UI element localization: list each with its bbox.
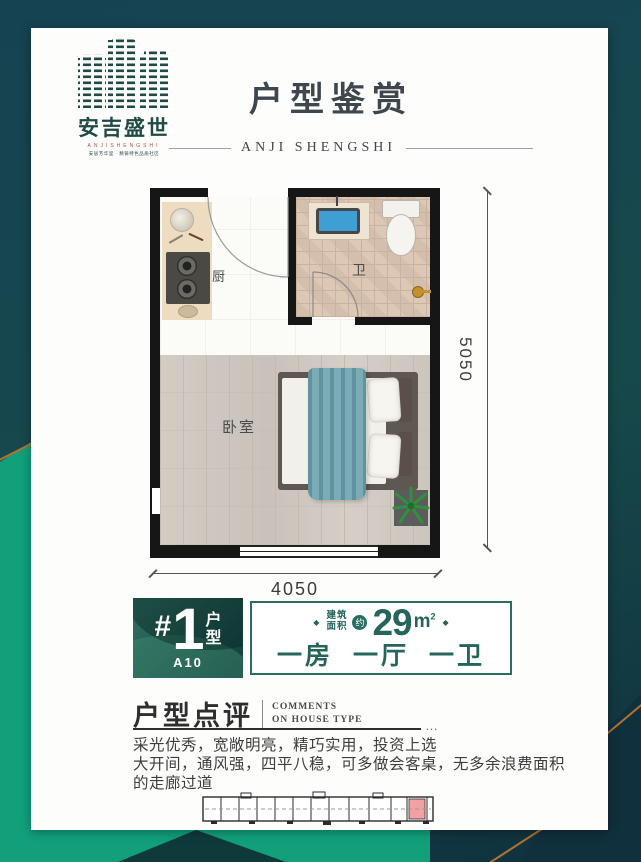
comments-subtitle-line: COMMENTS (272, 701, 362, 714)
dimension-line-horizontal (152, 573, 438, 574)
door-arcs (150, 188, 440, 560)
dimension-width: 4050 (255, 579, 335, 600)
poster-card: 安吉盛世 ANJISHENGSHI 安居芳华里 · 精铸特色品质社区 户型鉴赏 … (31, 28, 608, 830)
dimension-height: 5050 (455, 328, 475, 392)
building-key-plan (195, 790, 441, 828)
poster: 安吉盛世 ANJISHENGSHI 安居芳华里 · 精铸特色品质社区 户型鉴赏 … (0, 0, 641, 862)
area-unit: m2 (414, 611, 436, 633)
area-label-line: 面积 (326, 622, 347, 633)
badge-hash: # (155, 610, 172, 644)
badge-type-char: 户 (205, 612, 221, 630)
diamond-icon: ◆ (313, 618, 319, 627)
subtitle-rule-left (169, 148, 231, 149)
badge-number: 1 (172, 604, 204, 655)
area-unit-m: m (414, 611, 431, 632)
badge-code: A10 (133, 655, 243, 670)
comments-subtitle: COMMENTS ON HOUSE TYPE (272, 701, 362, 727)
area-row: ◆ 建筑 面积 约 29 m2 ◆ (252, 603, 510, 641)
area-label: 建筑 面积 (326, 611, 347, 633)
subtitle-rule-right (406, 148, 533, 149)
subtitle-text: ANJI SHENGSHI (241, 140, 396, 156)
page-title: 户型鉴赏 (171, 72, 491, 121)
diamond-icon: ◆ (443, 618, 449, 627)
area-value: 29 (372, 604, 411, 641)
area-unit-sup: 2 (431, 612, 436, 622)
badge-main: # 1 户 型 (133, 604, 243, 655)
layout-text: 一房 一厅 一卫 (252, 641, 510, 671)
comments-line1: 采光优秀，宽敞明亮，精巧实用，投资上选 (133, 736, 573, 755)
comments-subtitle-line: ON HOUSE TYPE (272, 714, 362, 727)
badge-type-char: 型 (205, 630, 221, 648)
dimension-line-vertical (487, 190, 488, 548)
comments-ellipsis: … (425, 718, 439, 733)
comments-divider (262, 700, 263, 728)
comments-paragraph: 采光优秀，宽敞明亮，精巧实用，投资上选 大开间，通风强，四平八稳，可多做会客桌，… (133, 736, 573, 793)
badge-type: 户 型 (205, 612, 221, 649)
page-subtitle: ANJI SHENGSHI (141, 140, 561, 156)
comments-rule (133, 728, 421, 730)
area-box: ◆ 建筑 面积 约 29 m2 ◆ 一房 一厅 一卫 (250, 601, 512, 675)
approx-circle: 约 (352, 615, 367, 630)
comments-line2: 大开间，通风强，四平八稳，可多做会客桌，无多余浪费面积的走廊过道 (133, 755, 573, 793)
buildings-logo-icon (72, 38, 176, 110)
unit-badge: # 1 户 型 A10 (133, 598, 243, 678)
floor-plan: 厨 卫 卧室 (150, 188, 440, 560)
